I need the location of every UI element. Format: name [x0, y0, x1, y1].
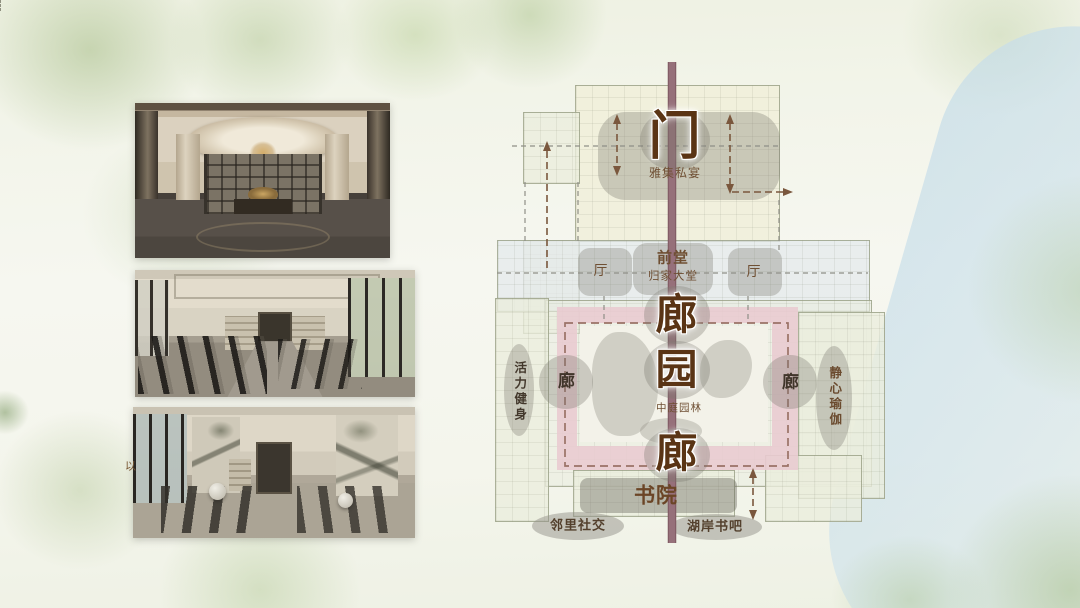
plan-stair-tower-top — [523, 112, 580, 184]
partial-text: 以 — [125, 461, 137, 472]
fitness-gym-photo — [135, 270, 415, 397]
column — [176, 134, 200, 200]
label-hall-right: 厅 — [747, 265, 762, 279]
label-corridor-left: 廊 — [558, 374, 576, 391]
label-arrival-lobby: 归家大堂 — [648, 270, 698, 282]
label-banquet: 雅集私宴 — [649, 167, 701, 179]
label-corridor-right: 廊 — [782, 375, 800, 392]
tree-blob — [860, 0, 1080, 150]
slide-canvas: 门 雅集私宴 前堂 归家大堂 厅 厅 廊 园 廊 廊 廊 活力健身 静心瑜伽 中… — [0, 0, 1080, 608]
label-yoga: 静心瑜伽 — [828, 366, 841, 428]
label-lakeside-bookbar: 湖岸书吧 — [687, 521, 743, 534]
column — [325, 134, 349, 200]
side-wall — [367, 111, 390, 199]
floor-medallion — [196, 222, 330, 252]
axis-char-garden: 园 — [655, 349, 698, 391]
photo-connector-dash — [0, 0, 1, 11]
exercise-ball — [209, 483, 226, 500]
mural-wall-right — [336, 415, 398, 496]
tree-blob — [920, 130, 1080, 450]
axis-char-corridor-top: 廊 — [655, 294, 698, 336]
label-hall-left: 厅 — [594, 264, 609, 278]
yoga-studio-photo — [133, 407, 415, 538]
axis-char-corridor-bottom: 廊 — [655, 432, 698, 474]
axis-char-gate: 门 — [648, 111, 701, 163]
tree-blob — [0, 385, 35, 440]
side-wall — [135, 111, 158, 199]
label-central-garden: 中庭园林 — [656, 403, 702, 414]
label-neighbor-social: 邻里社交 — [550, 520, 606, 533]
label-front-hall: 前堂 — [657, 251, 689, 266]
treadmill-row-right — [278, 339, 362, 390]
console-table — [234, 199, 292, 214]
grand-lobby-photo — [135, 103, 390, 258]
label-fitness: 活力健身 — [513, 361, 526, 423]
tree-blob — [900, 430, 1080, 608]
label-study: 书院 — [634, 485, 678, 506]
treadmill-row-left — [138, 336, 267, 394]
tree-blob — [800, 510, 1020, 608]
